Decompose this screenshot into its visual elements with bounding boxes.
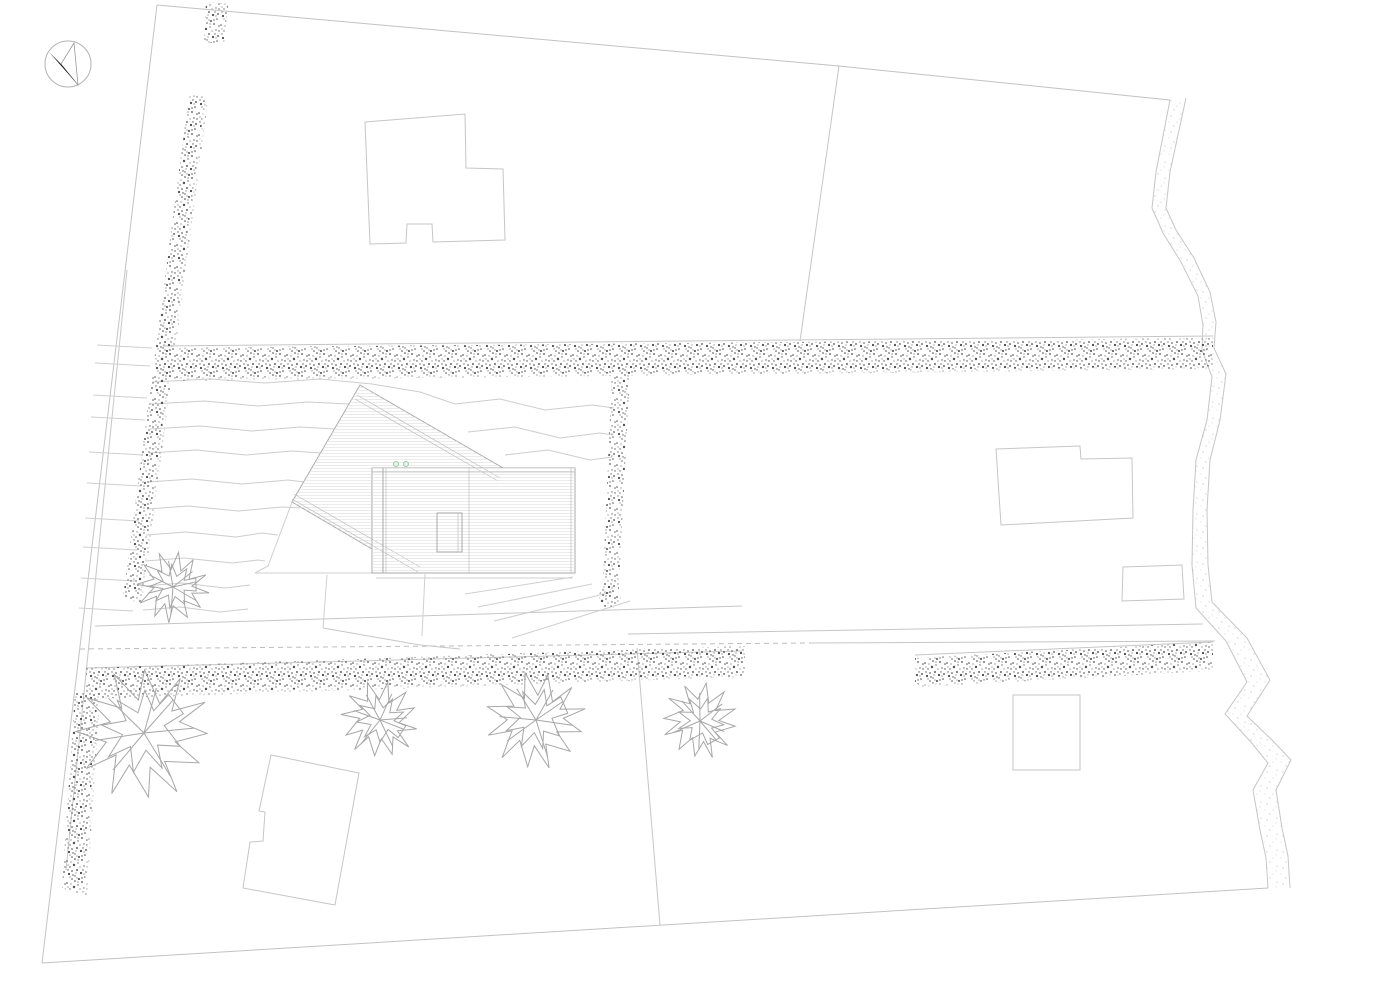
roof-marker-green bbox=[394, 462, 399, 467]
building-southeast-shed bbox=[1013, 695, 1080, 770]
roof-marker-green bbox=[404, 462, 409, 467]
site-plan-canvas bbox=[0, 0, 1400, 990]
building-east-shed bbox=[1122, 565, 1184, 601]
hedgerow-north-clump bbox=[204, 2, 228, 44]
north-arrow-icon bbox=[45, 41, 91, 87]
paper-background bbox=[0, 0, 1400, 990]
hedgerow-middle-end-clump bbox=[599, 586, 621, 608]
